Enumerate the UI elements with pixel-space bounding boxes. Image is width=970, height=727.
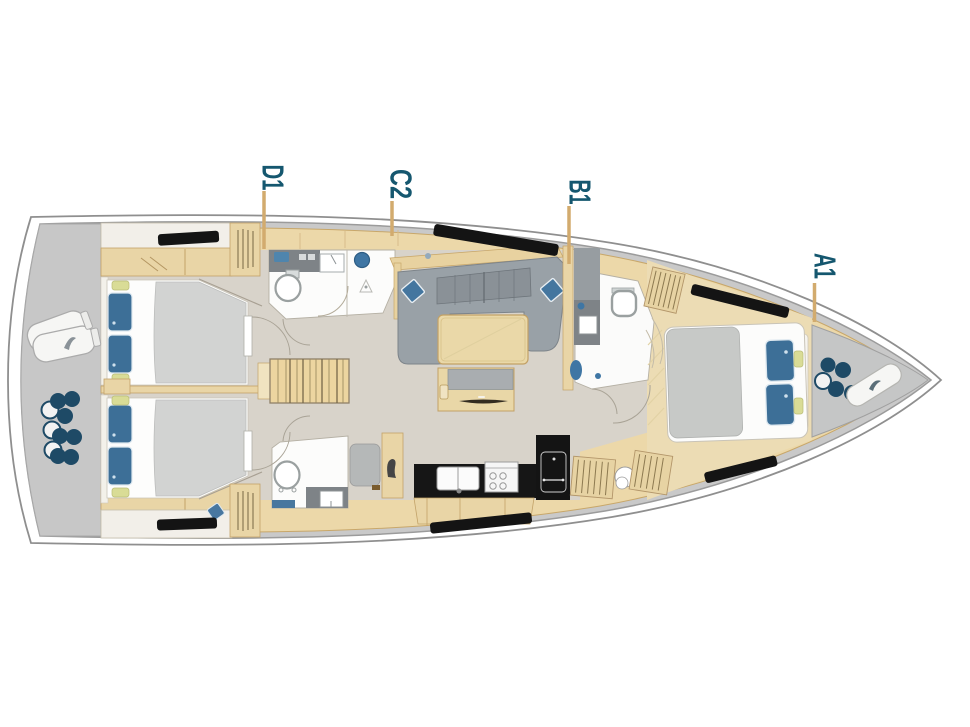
svg-text:B1: B1 — [563, 180, 598, 205]
svg-text:C2: C2 — [384, 169, 419, 199]
svg-text:A1: A1 — [808, 253, 843, 279]
svg-text:D1: D1 — [256, 165, 291, 191]
